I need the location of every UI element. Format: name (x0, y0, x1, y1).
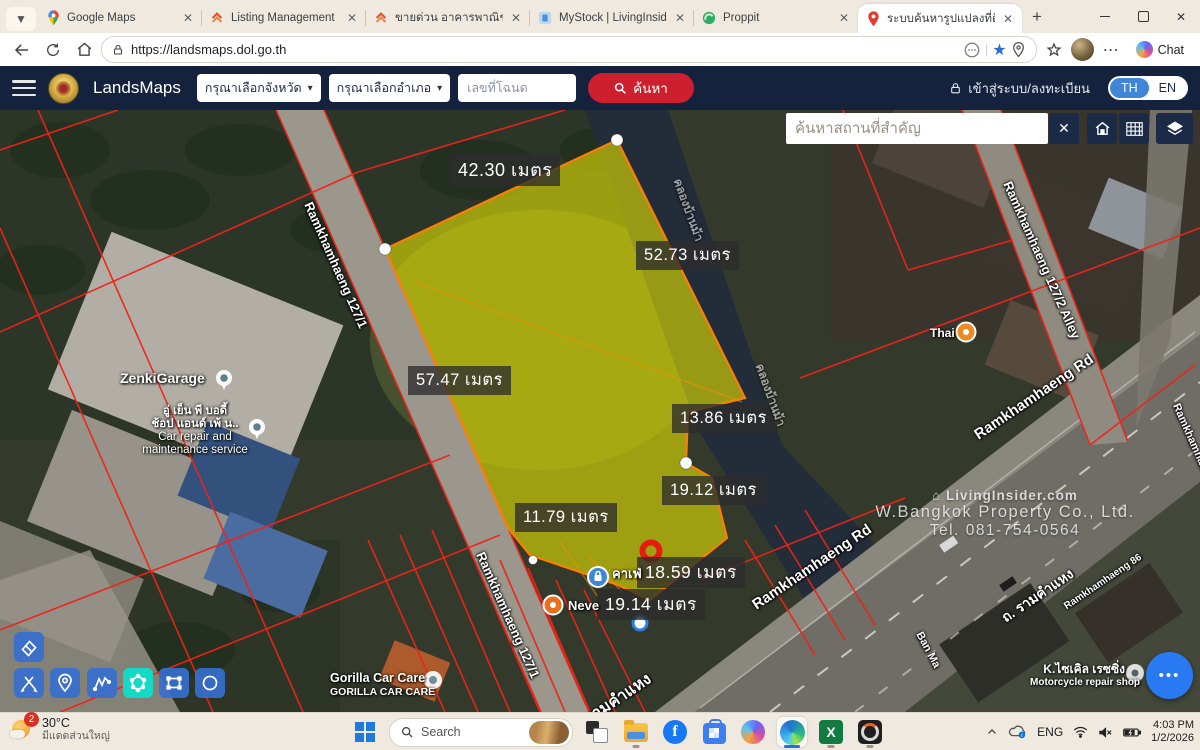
tab-sale-listing[interactable]: ขายด่วน อาคารพาณิชย์ 3.5 ชั้น ✕ (366, 3, 530, 33)
tab-title: ระบบค้นหารูปแปลงที่ดิน (Lands (887, 10, 995, 28)
tab-close-icon[interactable]: ✕ (345, 11, 359, 25)
browser-menu-icon[interactable]: ⋯ (1097, 37, 1125, 63)
measurement-label: 11.79 เมตร (515, 503, 617, 532)
close-window-button[interactable]: ✕ (1162, 0, 1200, 33)
polyline-icon (92, 673, 112, 693)
onedrive-icon[interactable]: i (1008, 725, 1027, 739)
brand-title: LandsMaps (93, 78, 181, 98)
url-text: https://landsmaps.dol.go.th (131, 42, 286, 57)
edge-icon (780, 720, 805, 745)
tray-date: 1/2/2026 (1151, 732, 1194, 745)
circle-icon (200, 673, 220, 693)
ms-store-button[interactable] (699, 717, 729, 747)
tray-clock[interactable]: 4:03 PM 1/2/2026 (1151, 719, 1194, 745)
google-maps-icon (45, 10, 61, 26)
language-toggle: TH EN (1108, 76, 1188, 100)
pin-icon (55, 673, 75, 693)
red-pin-icon (865, 11, 881, 27)
chevron-down-icon: ▾ (437, 83, 442, 94)
facebook-button[interactable]: f (660, 717, 690, 747)
browser-address-bar: https://landsmaps.dol.go.th | ★ ⋯ Chat (0, 33, 1200, 66)
mystock-icon (537, 10, 553, 26)
measurement-label: 42.30 เมตร (450, 154, 560, 186)
weather-temp: 30°C (42, 716, 110, 730)
province-select-value: กรุณาเลือกจังหวัด (205, 78, 302, 98)
tab-proppit[interactable]: Proppit ✕ (694, 3, 858, 33)
tab-title: Google Maps (67, 12, 175, 24)
tab-mystock[interactable]: MyStock | LivingInsider.com ✕ (530, 3, 694, 33)
layers-icon (1166, 120, 1184, 138)
copilot-button[interactable] (738, 717, 768, 747)
tab-title: MyStock | LivingInsider.com (559, 12, 667, 24)
bookmark-star-icon[interactable]: ★ (992, 40, 1006, 60)
maximize-button[interactable] (1124, 0, 1162, 33)
lock-icon (949, 81, 962, 96)
livinginsider-icon (209, 10, 225, 26)
tool-eraser-button[interactable] (14, 632, 44, 662)
district-select[interactable]: กรุณาเลือกอำเภอ ▾ (329, 74, 450, 102)
map-home-button[interactable] (1087, 113, 1117, 144)
url-bar[interactable]: https://landsmaps.dol.go.th | ★ (101, 36, 1037, 63)
excel-button[interactable]: X (816, 717, 846, 747)
tray-time: 4:03 PM (1151, 719, 1194, 732)
proppit-icon (701, 10, 717, 26)
tab-close-icon[interactable]: ✕ (837, 11, 851, 25)
weather-desc: มีแดดส่วนใหญ่ (42, 730, 110, 742)
place-label-car-repair: อู่ เย็น พี บอดี้ ช้อป แอนด์ เพ้ น.. Car… (130, 405, 260, 457)
rectangle-icon (164, 673, 184, 693)
tab-title: Proppit (723, 12, 831, 24)
copilot-chat-button[interactable]: Chat (1128, 38, 1192, 61)
dark-app-icon (858, 720, 882, 744)
copilot-icon (741, 720, 765, 744)
permissions-icon[interactable] (963, 41, 981, 59)
measurement-label: 19.12 เมตร (662, 476, 765, 505)
place-label-neve: Neve (568, 598, 599, 613)
browser-tab-bar: ▼ Google Maps ✕ Listing Management ✕ ขาย… (0, 0, 1200, 33)
measurement-label: 57.47 เมตร (408, 366, 511, 395)
lang-en-button[interactable]: EN (1149, 78, 1186, 98)
new-tab-button[interactable]: + (1024, 4, 1050, 30)
poi-search-clear-button[interactable]: ✕ (1049, 113, 1079, 144)
taskbar-search-label: Search (421, 725, 461, 739)
lock-icon (112, 43, 124, 57)
start-button[interactable] (350, 717, 380, 747)
svg-text:i: i (1021, 733, 1022, 739)
wifi-icon[interactable] (1073, 726, 1088, 738)
folder-icon (624, 723, 648, 742)
excel-icon: X (819, 720, 843, 744)
tray-chevron-icon[interactable] (986, 726, 998, 738)
back-icon[interactable] (8, 37, 36, 63)
taskbar-icons: Search f X (350, 713, 885, 750)
polygon-icon (128, 673, 148, 693)
edge-button[interactable] (777, 717, 807, 747)
measurement-label: 18.59 เมตร (637, 557, 745, 588)
place-label-zenki: ZenkiGarage (120, 370, 205, 386)
search-icon (401, 726, 414, 739)
minimize-button[interactable] (1086, 0, 1124, 33)
windows-taskbar: 2 30°C มีแดดส่วนใหญ่ Search f X (0, 712, 1200, 750)
tool-rectangle-button[interactable] (159, 668, 189, 698)
neve-marker[interactable] (544, 596, 563, 615)
tool-polyline-button[interactable] (87, 668, 117, 698)
poi-search-input[interactable] (786, 113, 1048, 144)
tab-close-icon[interactable]: ✕ (509, 11, 523, 25)
task-view-button[interactable] (582, 717, 612, 747)
search-button[interactable]: ค้นหา (588, 73, 694, 103)
search-icon (614, 82, 627, 95)
deed-number-input[interactable] (458, 74, 576, 102)
watermark: ⌂ LivingInsider.com W.Bangkok Property C… (830, 488, 1180, 540)
tab-close-icon[interactable]: ✕ (1001, 12, 1015, 26)
place-label-cafe: คาเฟ่ (612, 563, 642, 584)
measurement-label: 19.14 เมตร (597, 589, 705, 620)
tab-close-icon[interactable]: ✕ (673, 11, 687, 25)
tool-polygon-button[interactable] (123, 668, 153, 698)
lang-th-button[interactable]: TH (1110, 78, 1149, 98)
facebook-icon: f (663, 720, 687, 744)
tool-circle-button[interactable] (195, 668, 225, 698)
system-tray: i ENG 4:03 PM 1/2/2026 (986, 713, 1194, 750)
battery-icon[interactable] (1123, 727, 1141, 738)
volume-muted-icon[interactable] (1098, 726, 1113, 739)
taskbar-weather[interactable]: 2 30°C มีแดดส่วนใหญ่ (10, 716, 110, 742)
profile-avatar[interactable] (1071, 38, 1094, 61)
place-label-gorilla: Gorilla Car Care GORILLA CAR CARE (330, 671, 420, 699)
tab-listing-management[interactable]: Listing Management ✕ (202, 3, 366, 33)
tool-pin-button[interactable] (50, 668, 80, 698)
dol-logo (48, 73, 79, 104)
home-icon[interactable] (70, 37, 98, 63)
copilot-icon (1136, 41, 1153, 58)
tab-title: Listing Management (231, 12, 339, 24)
place-label-thai: Thai (930, 326, 955, 340)
refresh-icon[interactable] (39, 37, 67, 63)
landsmaps-header: LandsMaps กรุณาเลือกจังหวัด ▾ กรุณาเลือก… (0, 66, 1200, 110)
taskbar-search[interactable]: Search (389, 718, 573, 747)
measurement-label: 13.86 เมตร (672, 404, 775, 433)
chat-label: Chat (1158, 43, 1184, 57)
tab-search-chevron-icon[interactable]: ▼ (6, 7, 36, 31)
tab-google-maps[interactable]: Google Maps ✕ (38, 3, 202, 33)
livinginsider-icon (373, 10, 389, 26)
home-icon (1094, 120, 1111, 137)
measurement-label: 52.73 เมตร (636, 241, 739, 270)
tab-close-icon[interactable]: ✕ (181, 11, 195, 25)
cafe-marker[interactable] (588, 567, 608, 587)
notification-badge: 2 (24, 712, 39, 727)
tab-landsmaps-active[interactable]: ระบบค้นหารูปแปลงที่ดิน (Lands ✕ (858, 4, 1022, 33)
window-controls: ✕ (1086, 0, 1200, 33)
bing-daily-image (529, 721, 569, 744)
measure-pencils-icon (19, 673, 39, 693)
store-icon (703, 723, 726, 744)
grid-icon (1126, 122, 1143, 136)
menu-hamburger-icon[interactable] (12, 80, 36, 96)
tab-title: ขายด่วน อาคารพาณิชย์ 3.5 ชั้น (395, 9, 503, 27)
thai-restaurant-marker[interactable] (957, 323, 976, 342)
map-more-fab[interactable]: ••• (1146, 652, 1193, 699)
recorder-app-button[interactable] (855, 717, 885, 747)
tool-measure-button[interactable] (14, 668, 44, 698)
screen: ▼ Google Maps ✕ Listing Management ✕ ขาย… (0, 0, 1200, 750)
chevron-down-icon: ▾ (308, 83, 313, 94)
district-select-value: กรุณาเลือกอำเภอ (337, 78, 431, 98)
login-link[interactable]: เข้าสู่ระบบ/ลงทะเบียน (949, 78, 1090, 99)
weather-sun-icon: 2 (10, 716, 36, 742)
login-label: เข้าสู่ระบบ/ลงทะเบียน (968, 78, 1090, 99)
search-button-label: ค้นหา (633, 77, 668, 99)
map-layers-button[interactable] (1156, 113, 1193, 144)
eraser-icon (19, 637, 39, 657)
collections-star-icon[interactable] (1040, 37, 1068, 63)
location-pin-icon[interactable] (1011, 42, 1026, 58)
map-grid-button[interactable] (1119, 113, 1149, 144)
province-select[interactable]: กรุณาเลือกจังหวัด ▾ (197, 74, 321, 102)
tray-language[interactable]: ENG (1037, 725, 1063, 739)
satellite-map[interactable]: 42.30 เมตร 52.73 เมตร 57.47 เมตร 13.86 เ… (0, 110, 1200, 712)
place-label-kcycle: K.ไซเคิล เรซซิ่ง Motorcycle repair shop (1030, 663, 1125, 689)
file-explorer-button[interactable] (621, 717, 651, 747)
